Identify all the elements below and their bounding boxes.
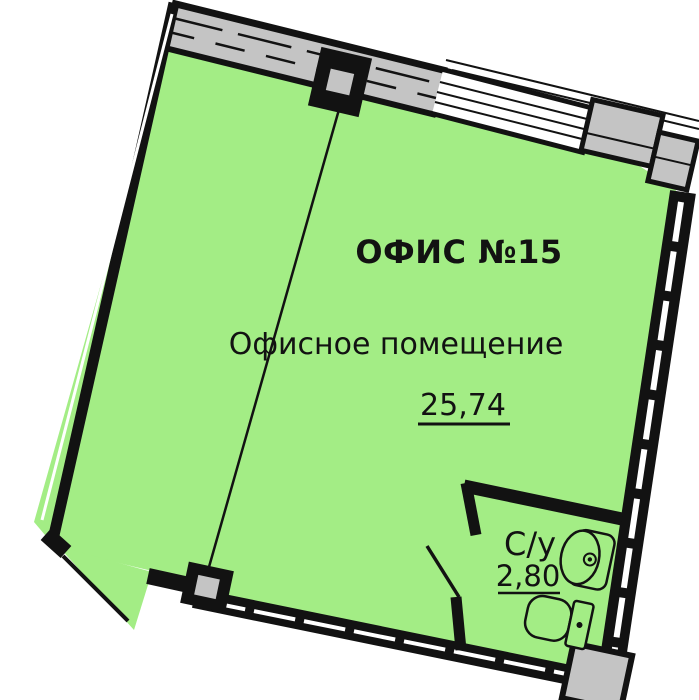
- column-bottom-right: [562, 643, 632, 700]
- office-title: ОФИС №15: [355, 233, 562, 271]
- office-area-value: 25,74: [420, 388, 506, 423]
- office-room-label: Офисное помещение: [229, 327, 564, 362]
- column-corner-block: [648, 132, 698, 190]
- bathroom-area-value: 2,80: [496, 559, 561, 593]
- floor-plan-svg: ОФИС №15 Офисное помещение 25,74 С/у 2,8…: [0, 0, 699, 700]
- bathroom-label: С/у: [504, 525, 556, 563]
- floor-plan-page: ОФИС №15 Офисное помещение 25,74 С/у 2,8…: [0, 0, 699, 700]
